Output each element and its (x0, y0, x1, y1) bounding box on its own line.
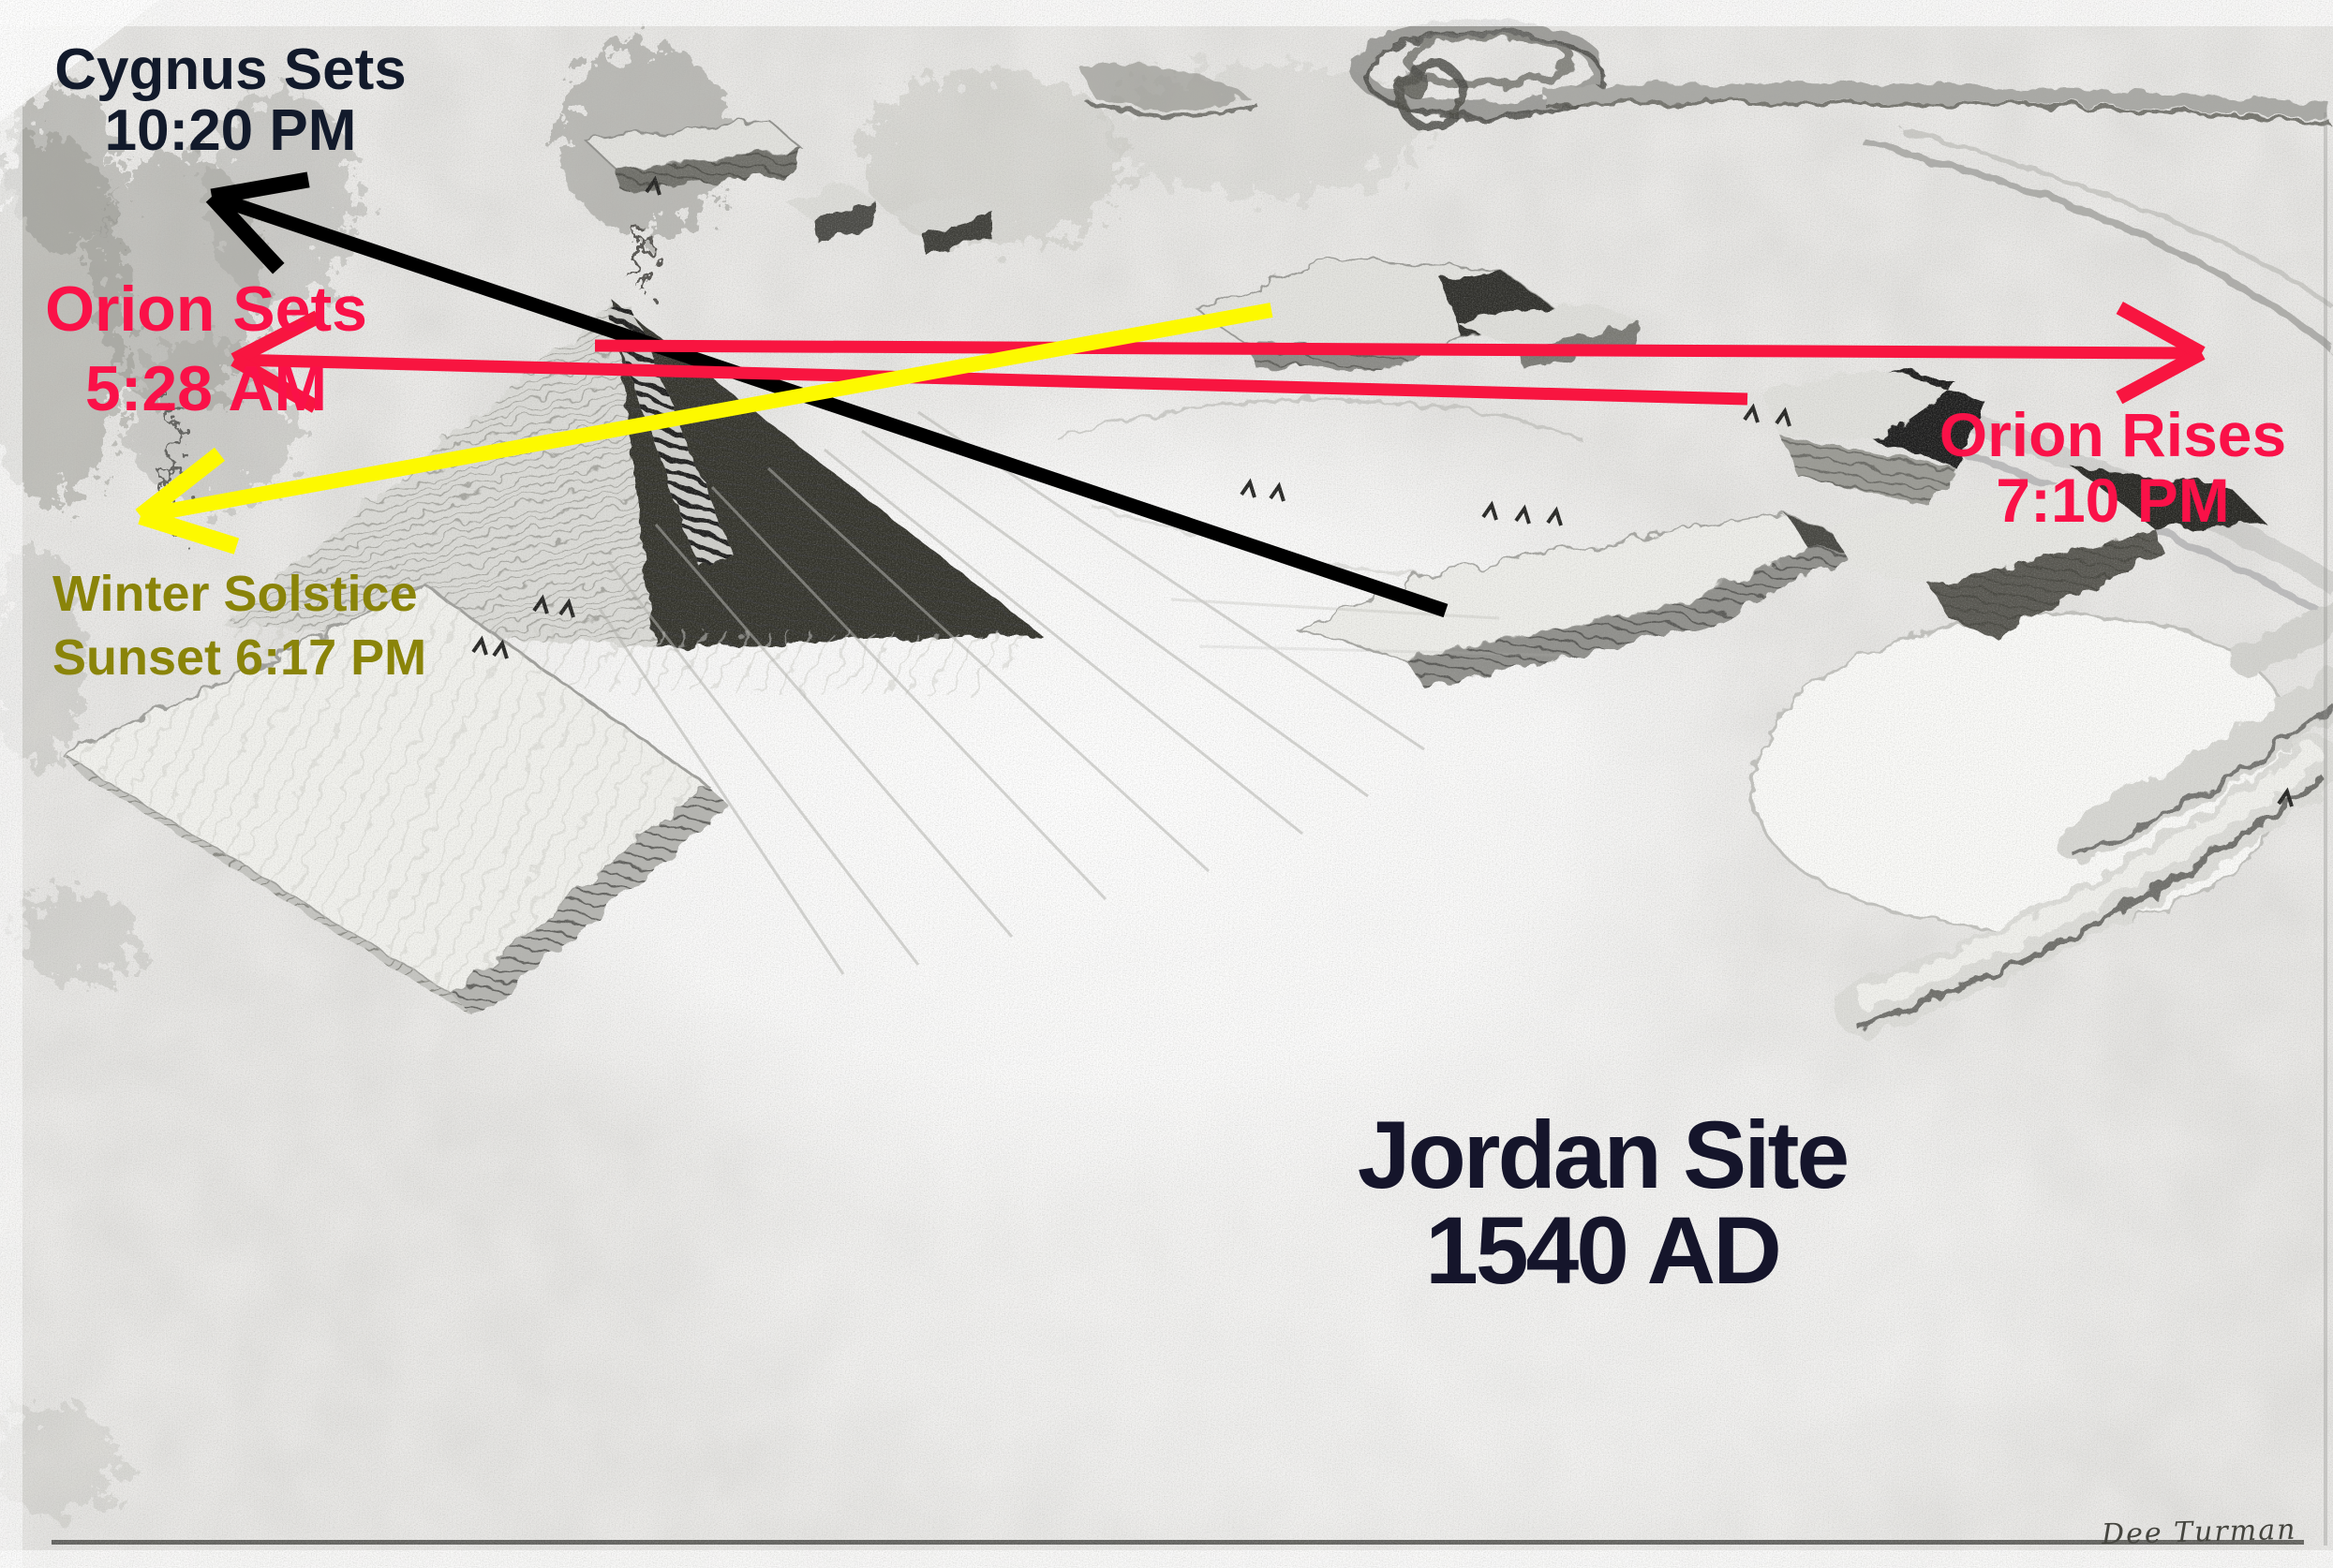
orion-rises-line1: Orion Rises (1902, 403, 2324, 468)
orion-rises-line2: 7:10 PM (1902, 468, 2324, 534)
artist-signature-text: Dee Turman (2102, 1513, 2327, 1551)
winter-solstice-label: Winter Solstice Sunset 6:17 PM (52, 562, 577, 689)
artist-signature: Dee Turman (2102, 1513, 2327, 1551)
orion-rises-label: Orion Rises 7:10 PM (1902, 403, 2324, 534)
cygnus-sets-line1: Cygnus Sets (26, 39, 435, 100)
winter-solstice-line1: Winter Solstice (52, 562, 577, 626)
cygnus-sets-label: Cygnus Sets 10:20 PM (26, 39, 435, 161)
illustration-canvas: Cygnus Sets 10:20 PM Orion Sets 5:28 AM … (0, 0, 2333, 1568)
site-title-label: Jordan Site 1540 AD (1302, 1107, 1902, 1298)
winter-solstice-line2: Sunset 6:17 PM (52, 626, 577, 689)
site-title-line1: Jordan Site (1302, 1107, 1902, 1203)
orion-sets-label: Orion Sets 5:28 AM (0, 270, 412, 429)
site-illustration (0, 0, 2333, 1568)
pencil-grain-texture (0, 0, 2333, 1568)
orion-sets-line2: 5:28 AM (0, 349, 412, 429)
orion-sets-line1: Orion Sets (0, 270, 412, 349)
orion-rises-arrow-shaft (595, 346, 2202, 353)
cygnus-sets-line2: 10:20 PM (26, 100, 435, 161)
site-title-line2: 1540 AD (1302, 1203, 1902, 1298)
